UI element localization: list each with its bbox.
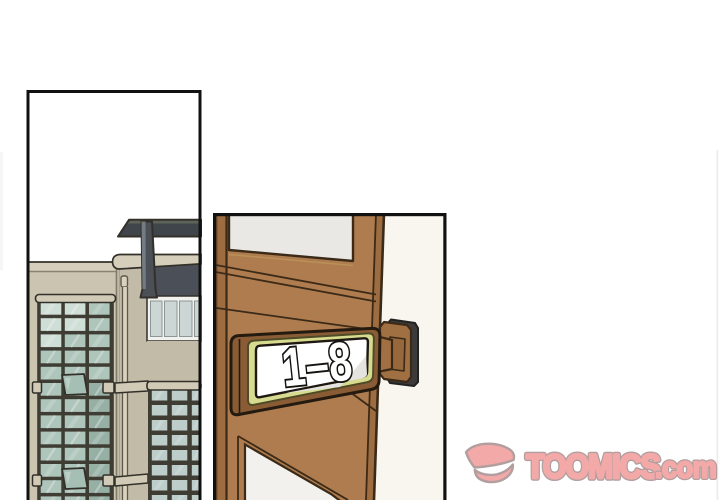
- svg-text:.com: .com: [655, 451, 716, 485]
- svg-text:1–8: 1–8: [279, 331, 355, 399]
- svg-text:TOOMICS: TOOMICS: [526, 447, 660, 485]
